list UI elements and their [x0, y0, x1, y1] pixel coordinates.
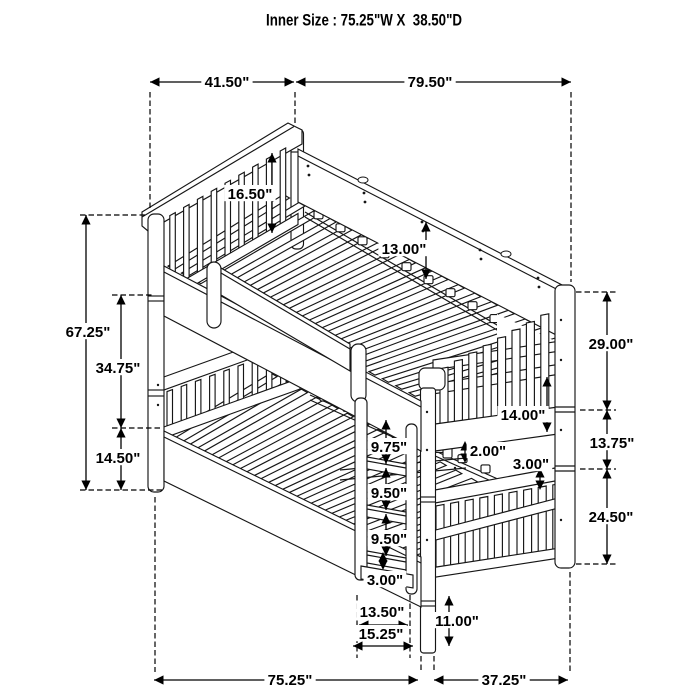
- svg-text:34.75": 34.75": [96, 360, 141, 377]
- svg-text:14.50": 14.50": [96, 450, 141, 467]
- svg-text:15.25": 15.25": [359, 626, 404, 643]
- svg-text:9.50": 9.50": [371, 531, 407, 548]
- svg-text:67.25": 67.25": [66, 324, 111, 341]
- svg-text:79.50": 79.50": [408, 74, 453, 91]
- svg-text:24.50": 24.50": [589, 509, 634, 526]
- svg-text:75.25": 75.25": [268, 672, 313, 689]
- svg-text:37.25": 37.25": [482, 672, 527, 689]
- svg-text:41.50": 41.50": [205, 74, 250, 91]
- svg-text:13.75": 13.75": [590, 435, 635, 452]
- svg-text:14.00": 14.00": [501, 407, 546, 424]
- svg-text:9.50": 9.50": [371, 485, 407, 502]
- svg-text:9.75": 9.75": [371, 439, 407, 456]
- svg-text:3.00": 3.00": [367, 572, 403, 589]
- svg-text:16.50": 16.50": [228, 186, 273, 203]
- svg-text:Inner Size : 75.25"W X 38.50": Inner Size : 75.25"W X 38.50"D: [266, 12, 462, 30]
- svg-text:2.00": 2.00": [470, 443, 506, 460]
- svg-text:29.00": 29.00": [589, 336, 634, 353]
- svg-text:13.00": 13.00": [382, 241, 427, 258]
- svg-text:13.50": 13.50": [360, 604, 405, 621]
- svg-text:11.00": 11.00": [435, 613, 479, 630]
- svg-text:3.00": 3.00": [513, 456, 549, 473]
